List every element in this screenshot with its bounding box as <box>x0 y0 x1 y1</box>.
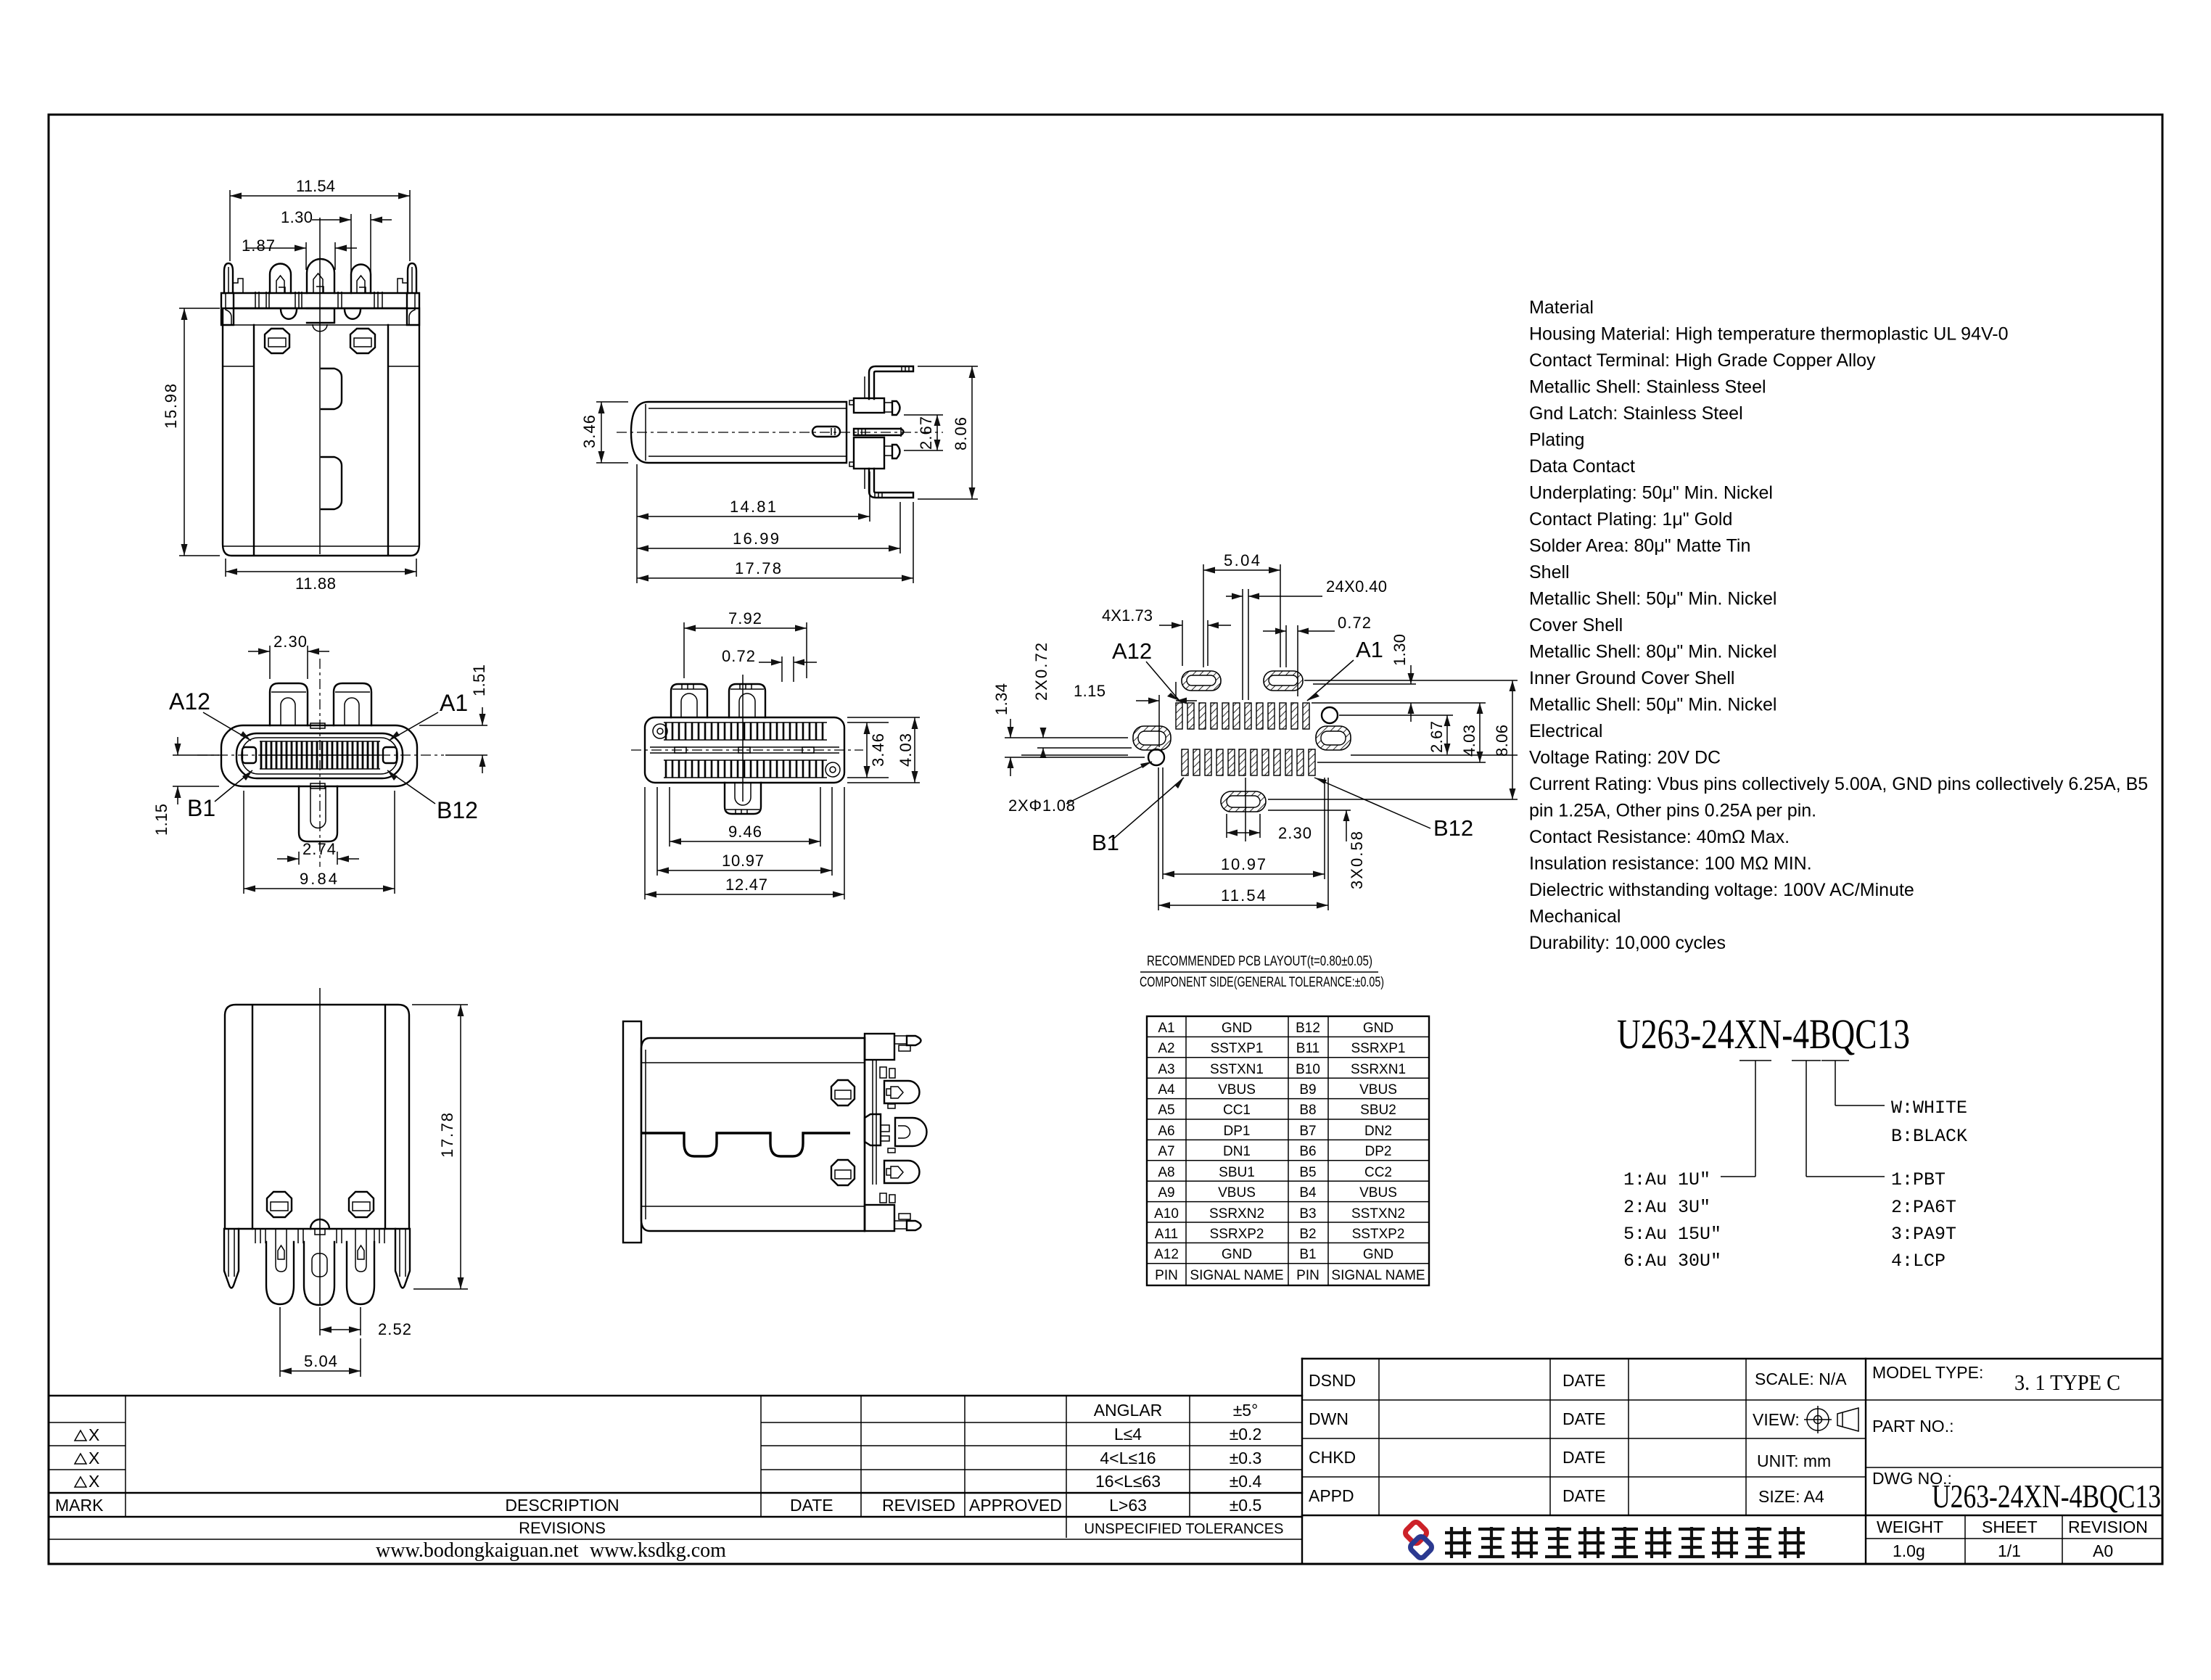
svg-text:CC2: CC2 <box>1364 1165 1392 1180</box>
svg-text:A4: A4 <box>1158 1082 1175 1098</box>
svg-text:COMPONENT SIDE(GENERAL TOLERAN: COMPONENT SIDE(GENERAL TOLERANCE:±0.05) <box>1140 975 1384 990</box>
svg-text:1.0g: 1.0g <box>1893 1541 1925 1560</box>
svg-text:W:WHITE: W:WHITE <box>1891 1098 1967 1119</box>
svg-text:SSRXN1: SSRXN1 <box>1351 1062 1406 1077</box>
svg-text:A12: A12 <box>1154 1247 1179 1262</box>
svg-text:4.03: 4.03 <box>1460 725 1478 757</box>
svg-text:7.92: 7.92 <box>728 609 762 627</box>
svg-text:REVISION: REVISION <box>2068 1518 2148 1536</box>
svg-text:2.67: 2.67 <box>917 416 935 450</box>
svg-text:DN2: DN2 <box>1364 1124 1392 1139</box>
svg-text:U263-24XN-4BQC13: U263-24XN-4BQC13 <box>1617 1010 1910 1058</box>
svg-text:Current Rating: Vbus pins coll: Current Rating: Vbus pins collectively 5… <box>1529 774 2148 794</box>
svg-text:1.34: 1.34 <box>992 683 1010 715</box>
svg-text:0.72: 0.72 <box>1338 614 1371 632</box>
svg-text:DATE: DATE <box>1562 1486 1606 1505</box>
svg-text:Dielectric withstanding voltag: Dielectric withstanding voltage: 100V AC… <box>1529 880 1914 900</box>
svg-text:pin 1.25A, Other pins 0.25A pe: pin 1.25A, Other pins 0.25A per pin. <box>1529 801 1816 821</box>
svg-text:2.67: 2.67 <box>1428 721 1446 753</box>
svg-text:SIGNAL NAME: SIGNAL NAME <box>1190 1268 1283 1283</box>
svg-text:Contact Resistance: 40mΩ Max.: Contact Resistance: 40mΩ Max. <box>1529 827 1790 847</box>
svg-text:X: X <box>88 1449 99 1467</box>
svg-text:B9: B9 <box>1299 1082 1316 1098</box>
svg-text:B:BLACK: B:BLACK <box>1891 1126 1967 1147</box>
svg-text:A1: A1 <box>440 690 468 716</box>
svg-text:www.ksdkg.com: www.ksdkg.com <box>590 1539 726 1562</box>
svg-text:B7: B7 <box>1299 1124 1316 1139</box>
svg-text:2.30: 2.30 <box>273 633 307 651</box>
svg-text:A12: A12 <box>169 688 210 715</box>
svg-text:A10: A10 <box>1154 1206 1179 1222</box>
svg-text:SSRXP1: SSRXP1 <box>1351 1041 1406 1056</box>
svg-text:9.84: 9.84 <box>300 870 337 888</box>
svg-text:DESCRIPTION: DESCRIPTION <box>505 1496 619 1515</box>
svg-text:VBUS: VBUS <box>1359 1082 1397 1098</box>
svg-text:17.78: 17.78 <box>438 1113 456 1158</box>
svg-text:Metallic Shell: 80μ" Min. Nick: Metallic Shell: 80μ" Min. Nickel <box>1529 642 1776 662</box>
svg-text:CC1: CC1 <box>1223 1103 1251 1118</box>
svg-text:Contact Plating: 1μ" Gold: Contact Plating: 1μ" Gold <box>1529 509 1732 530</box>
svg-text:DATE: DATE <box>1562 1409 1606 1428</box>
svg-text:A2: A2 <box>1158 1041 1174 1056</box>
svg-text:DATE: DATE <box>1562 1371 1606 1390</box>
svg-text:Mechanical: Mechanical <box>1529 907 1621 927</box>
svg-text:4<L≤16: 4<L≤16 <box>1100 1449 1156 1467</box>
svg-text:SIGNAL NAME: SIGNAL NAME <box>1331 1268 1425 1283</box>
svg-text:A9: A9 <box>1158 1185 1174 1201</box>
svg-text:15.98: 15.98 <box>162 384 180 429</box>
svg-text:A6: A6 <box>1158 1124 1174 1139</box>
svg-text:Metallic Shell: Stainless Stee: Metallic Shell: Stainless Steel <box>1529 377 1766 398</box>
svg-text:1/1: 1/1 <box>1998 1541 2021 1560</box>
svg-text:B12: B12 <box>1296 1021 1320 1036</box>
svg-text:3X0.58: 3X0.58 <box>1348 831 1366 889</box>
svg-text:RECOMMENDED PCB LAYOUT(t=0.80±: RECOMMENDED PCB LAYOUT(t=0.80±0.05) <box>1147 954 1372 969</box>
svg-text:A7: A7 <box>1158 1144 1174 1159</box>
svg-text:±5°: ±5° <box>1233 1401 1259 1420</box>
svg-text:4.03: 4.03 <box>897 733 915 767</box>
svg-text:3.46: 3.46 <box>869 733 887 767</box>
svg-text:B5: B5 <box>1299 1165 1316 1180</box>
svg-text:X: X <box>88 1472 99 1491</box>
svg-text:DSND: DSND <box>1309 1371 1356 1390</box>
svg-text:1:PBT: 1:PBT <box>1891 1169 1946 1190</box>
svg-text:±0.4: ±0.4 <box>1230 1472 1262 1491</box>
svg-text:SSTXP1: SSTXP1 <box>1211 1041 1264 1056</box>
svg-text:X: X <box>88 1425 99 1444</box>
svg-text:SIZE: A4: SIZE: A4 <box>1758 1487 1824 1506</box>
svg-text:A1: A1 <box>1158 1021 1174 1036</box>
svg-text:CHKD: CHKD <box>1309 1448 1356 1467</box>
svg-text:3.46: 3.46 <box>580 415 598 448</box>
svg-text:B8: B8 <box>1299 1103 1316 1118</box>
svg-text:UNSPECIFIED TOLERANCES: UNSPECIFIED TOLERANCES <box>1084 1521 1284 1537</box>
svg-text:Underplating: 50μ" Min. Nickel: Underplating: 50μ" Min. Nickel <box>1529 483 1773 503</box>
svg-text:B2: B2 <box>1299 1227 1316 1242</box>
svg-text:SSTXN1: SSTXN1 <box>1210 1062 1264 1077</box>
svg-text:10.97: 10.97 <box>1221 855 1266 873</box>
svg-text:24X0.40: 24X0.40 <box>1326 577 1387 596</box>
svg-text:12.47: 12.47 <box>725 876 767 894</box>
svg-text:1.15: 1.15 <box>152 804 170 836</box>
svg-text:0.72: 0.72 <box>722 647 755 665</box>
svg-text:GND: GND <box>1363 1021 1393 1036</box>
svg-text:B1: B1 <box>187 795 215 821</box>
svg-text:SCALE: N/A: SCALE: N/A <box>1755 1370 1847 1388</box>
svg-text:A11: A11 <box>1155 1227 1178 1242</box>
svg-text:2:PA6T: 2:PA6T <box>1891 1197 1956 1218</box>
svg-text:1.51: 1.51 <box>470 664 488 696</box>
svg-text:APPROVED: APPROVED <box>969 1496 1062 1515</box>
svg-text:SSTXP2: SSTXP2 <box>1352 1227 1405 1242</box>
svg-text:16.99: 16.99 <box>733 530 779 548</box>
svg-text:UNIT: mm: UNIT: mm <box>1757 1452 1831 1470</box>
svg-text:SSTXN2: SSTXN2 <box>1351 1206 1405 1222</box>
svg-text:www.bodongkaiguan.net: www.bodongkaiguan.net <box>376 1539 579 1562</box>
svg-text:Data Contact: Data Contact <box>1529 456 1635 477</box>
svg-text:VBUS: VBUS <box>1218 1185 1256 1201</box>
svg-text:5.04: 5.04 <box>304 1352 337 1370</box>
svg-text:APPD: APPD <box>1309 1486 1354 1505</box>
svg-text:WEIGHT: WEIGHT <box>1877 1518 1943 1536</box>
svg-text:B10: B10 <box>1296 1062 1320 1077</box>
svg-text:PART NO.:: PART NO.: <box>1872 1417 1953 1436</box>
svg-text:B4: B4 <box>1299 1185 1317 1201</box>
svg-text:DN1: DN1 <box>1223 1144 1251 1159</box>
svg-text:2.30: 2.30 <box>1278 824 1312 842</box>
svg-text:2X0.72: 2X0.72 <box>1032 643 1050 701</box>
svg-text:Gnd Latch: Stainless Steel: Gnd Latch: Stainless Steel <box>1529 403 1743 424</box>
svg-text:SBU1: SBU1 <box>1219 1165 1255 1180</box>
svg-text:2.52: 2.52 <box>378 1320 411 1338</box>
svg-text:DWN: DWN <box>1309 1409 1349 1428</box>
svg-text:GND: GND <box>1363 1247 1393 1262</box>
svg-text:2.74: 2.74 <box>302 840 336 858</box>
svg-text:8.06: 8.06 <box>1493 725 1511 757</box>
svg-text:DATE: DATE <box>790 1496 833 1515</box>
svg-text:Contact Terminal: High Grade C: Contact Terminal: High Grade Copper Allo… <box>1529 350 1876 371</box>
svg-text:10.97: 10.97 <box>722 852 764 870</box>
svg-text:REVISED: REVISED <box>882 1496 955 1515</box>
svg-text:DATE: DATE <box>1562 1448 1606 1467</box>
svg-text:1.15: 1.15 <box>1074 682 1105 700</box>
svg-text:VIEW:: VIEW: <box>1753 1410 1800 1429</box>
svg-text:4:LCP: 4:LCP <box>1891 1251 1946 1272</box>
svg-text:Insulation resistance: 100 MΩ: Insulation resistance: 100 MΩ MIN. <box>1529 854 1812 874</box>
svg-text:1.30: 1.30 <box>281 208 313 226</box>
svg-text:Metallic Shell: 50μ" Min. Nick: Metallic Shell: 50μ" Min. Nickel <box>1529 589 1776 609</box>
svg-text:8.06: 8.06 <box>952 417 970 450</box>
svg-text:A8: A8 <box>1158 1165 1174 1180</box>
svg-text:B12: B12 <box>1433 815 1473 841</box>
svg-text:±0.5: ±0.5 <box>1230 1496 1262 1515</box>
svg-text:Housing Material: High tempera: Housing Material: High temperature therm… <box>1529 324 2009 345</box>
svg-text:4X1.73: 4X1.73 <box>1102 606 1153 625</box>
svg-text:A5: A5 <box>1158 1103 1174 1118</box>
svg-text:±0.3: ±0.3 <box>1230 1449 1262 1467</box>
svg-text:6:Au 30U": 6:Au 30U" <box>1623 1251 1721 1272</box>
svg-text:1:Au 1U": 1:Au 1U" <box>1623 1169 1710 1190</box>
svg-text:Durability: 10,000 cycles: Durability: 10,000 cycles <box>1529 933 1726 953</box>
svg-text:GND: GND <box>1222 1021 1252 1036</box>
svg-text:A12: A12 <box>1112 638 1152 664</box>
svg-text:SBU2: SBU2 <box>1360 1103 1396 1118</box>
svg-text:U263-24XN-4BQC13: U263-24XN-4BQC13 <box>1932 1478 2161 1515</box>
svg-text:Metallic Shell: 50μ" Min. Nick: Metallic Shell: 50μ" Min. Nickel <box>1529 695 1776 715</box>
svg-text:SSRXP2: SSRXP2 <box>1210 1227 1264 1242</box>
svg-text:SSRXN2: SSRXN2 <box>1209 1206 1264 1222</box>
svg-text:ANGLAR: ANGLAR <box>1094 1401 1163 1420</box>
svg-text:±0.2: ±0.2 <box>1230 1425 1262 1444</box>
svg-text:MARK: MARK <box>55 1496 104 1515</box>
svg-text:11.54: 11.54 <box>1221 886 1266 905</box>
svg-text:B6: B6 <box>1299 1144 1316 1159</box>
svg-text:B3: B3 <box>1299 1206 1316 1222</box>
svg-text:PIN: PIN <box>1155 1268 1178 1283</box>
svg-text:A1: A1 <box>1356 637 1383 662</box>
svg-text:5.04: 5.04 <box>1224 551 1260 569</box>
svg-text:B1: B1 <box>1299 1247 1316 1262</box>
svg-text:SHEET: SHEET <box>1982 1518 2038 1536</box>
svg-text:VBUS: VBUS <box>1359 1185 1397 1201</box>
svg-text:2:Au 3U": 2:Au 3U" <box>1623 1197 1710 1218</box>
svg-text:A0: A0 <box>2093 1541 2113 1560</box>
svg-text:17.78: 17.78 <box>735 559 781 577</box>
svg-text:Inner Ground Cover Shell: Inner Ground Cover Shell <box>1529 668 1734 688</box>
svg-text:11.54: 11.54 <box>296 177 335 195</box>
svg-text:3:PA9T: 3:PA9T <box>1891 1224 1956 1245</box>
svg-text:Voltage Rating: 20V DC: Voltage Rating: 20V DC <box>1529 748 1721 768</box>
svg-text:A3: A3 <box>1158 1062 1174 1077</box>
svg-text:1.87: 1.87 <box>242 236 275 255</box>
svg-text:11.88: 11.88 <box>295 575 336 593</box>
svg-text:Plating: Plating <box>1529 430 1584 450</box>
svg-text:MODEL TYPE:: MODEL TYPE: <box>1872 1363 1983 1382</box>
svg-text:1.30: 1.30 <box>1391 634 1409 666</box>
svg-text:Solder Area: 80μ" Matte Tin: Solder Area: 80μ" Matte Tin <box>1529 536 1750 556</box>
svg-text:14.81: 14.81 <box>730 498 776 516</box>
svg-text:PIN: PIN <box>1296 1268 1319 1283</box>
svg-text:Cover Shell: Cover Shell <box>1529 615 1623 635</box>
svg-text:L>63: L>63 <box>1109 1496 1147 1515</box>
svg-text:VBUS: VBUS <box>1218 1082 1256 1098</box>
svg-text:Electrical: Electrical <box>1529 721 1602 741</box>
svg-text:Shell: Shell <box>1529 562 1570 582</box>
svg-text:5:Au 15U": 5:Au 15U" <box>1623 1224 1721 1245</box>
svg-text:B12: B12 <box>437 797 478 823</box>
svg-text:3. 1 TYPE C: 3. 1 TYPE C <box>2014 1370 2120 1395</box>
svg-text:DP1: DP1 <box>1224 1124 1251 1139</box>
svg-text:2XΦ1.08: 2XΦ1.08 <box>1008 796 1075 815</box>
svg-text:GND: GND <box>1222 1247 1252 1262</box>
svg-text:B1: B1 <box>1092 830 1119 855</box>
svg-text:B11: B11 <box>1296 1041 1319 1056</box>
svg-text:L≤4: L≤4 <box>1114 1425 1142 1444</box>
svg-text:16<L≤63: 16<L≤63 <box>1095 1472 1161 1491</box>
svg-text:REVISIONS: REVISIONS <box>519 1519 606 1537</box>
svg-text:9.46: 9.46 <box>728 823 762 841</box>
svg-text:DP2: DP2 <box>1365 1144 1392 1159</box>
svg-text:Material: Material <box>1529 297 1594 318</box>
